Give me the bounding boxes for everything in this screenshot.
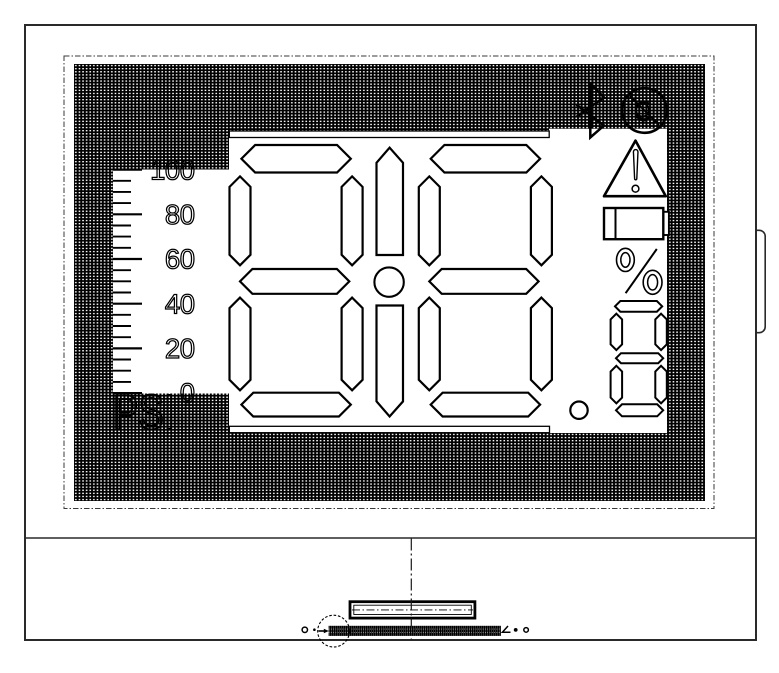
svg-text:80: 80 — [165, 199, 195, 230]
svg-text:40: 40 — [165, 288, 195, 319]
svg-text:60: 60 — [165, 244, 195, 275]
svg-text:100: 100 — [150, 154, 195, 185]
svg-text:20: 20 — [165, 333, 195, 364]
svg-text:PSI: PSI — [113, 385, 175, 440]
svg-text:0: 0 — [180, 378, 195, 409]
